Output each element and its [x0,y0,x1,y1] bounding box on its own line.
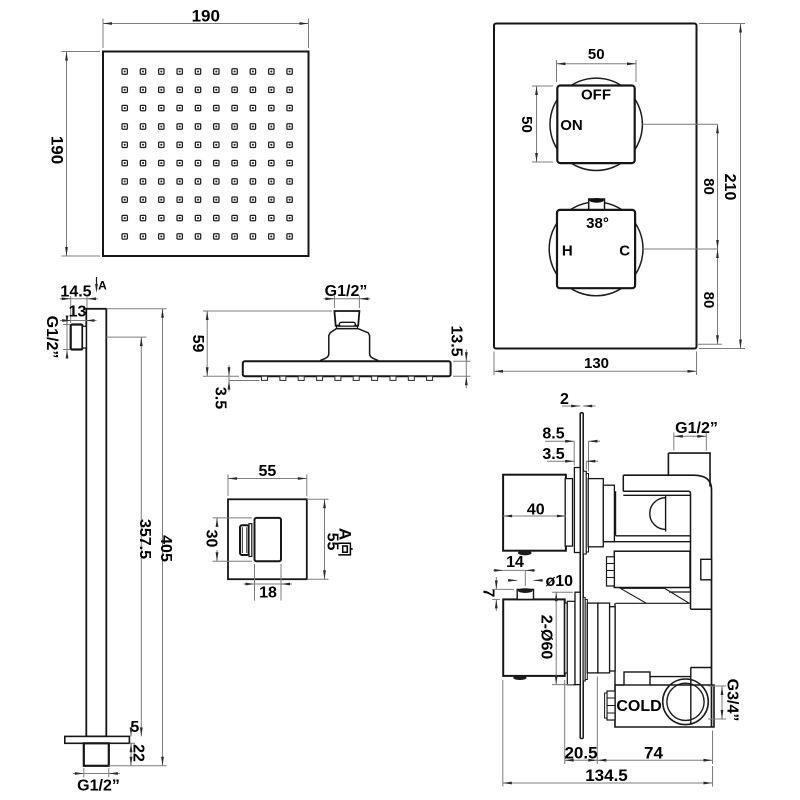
svg-text:G1/2”: G1/2” [77,777,120,794]
svg-text:5: 5 [130,719,139,736]
svg-text:210: 210 [721,174,738,201]
svg-text:A: A [98,278,107,292]
svg-text:405: 405 [157,535,174,562]
svg-text:A: A [335,528,354,540]
svg-text:74: 74 [644,743,663,762]
svg-text:8.5: 8.5 [542,426,564,443]
svg-text:G1/2”: G1/2” [43,316,60,359]
svg-text:C: C [619,243,630,260]
svg-text:18: 18 [259,585,277,602]
svg-text:130: 130 [584,355,609,372]
svg-text:13.5: 13.5 [448,325,465,356]
svg-text:G1/2”: G1/2” [675,420,718,437]
svg-text:59: 59 [189,335,206,353]
svg-text:80: 80 [700,178,717,195]
svg-text:14: 14 [506,554,524,571]
svg-text:H: H [562,243,573,260]
svg-text:13: 13 [69,303,87,320]
svg-text:ON: ON [560,117,583,134]
svg-text:COLD: COLD [616,698,661,715]
svg-text:OFF: OFF [581,87,611,104]
svg-text:3.5: 3.5 [542,446,564,463]
svg-text:22: 22 [130,744,147,762]
svg-text:38°: 38° [586,215,609,232]
svg-text:G3/4”: G3/4” [724,679,741,722]
svg-text:G1/2”: G1/2” [325,283,368,300]
svg-text:190: 190 [192,6,220,25]
svg-text:3.5: 3.5 [212,387,229,409]
svg-text:2-Ø60: 2-Ø60 [538,615,555,660]
svg-text:357.5: 357.5 [136,519,153,559]
svg-text:20.5: 20.5 [564,743,597,762]
svg-text:40: 40 [527,502,545,519]
svg-text:55: 55 [259,463,277,480]
svg-text:50: 50 [588,46,605,63]
svg-text:30: 30 [203,530,220,548]
svg-text:ø10: ø10 [546,573,574,590]
svg-text:134.5: 134.5 [585,766,628,785]
svg-text:190: 190 [47,136,66,164]
svg-text:80: 80 [700,292,717,309]
svg-text:50: 50 [518,116,535,133]
